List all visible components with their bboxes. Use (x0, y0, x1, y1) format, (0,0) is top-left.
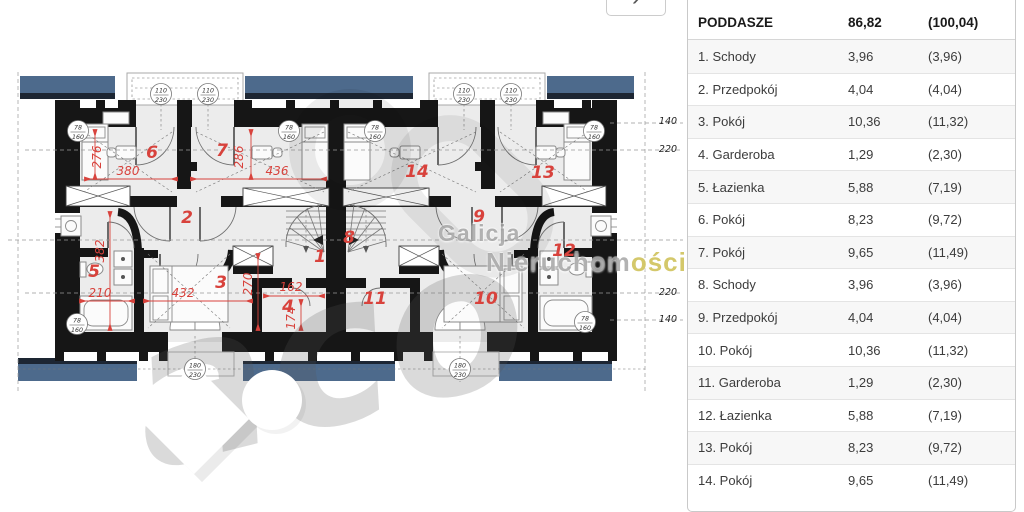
margin-dimension-label: 140 (659, 314, 677, 325)
room-name: 9. Przedpokój (698, 310, 848, 325)
svg-text:78: 78 (285, 125, 293, 132)
table-row: 3. Pokój 10,36 (11,32) (688, 105, 1015, 138)
svg-text:180: 180 (189, 363, 201, 370)
svg-text:230: 230 (155, 97, 167, 104)
svg-text:230: 230 (458, 97, 470, 104)
margin-dimension-label: 140 (659, 116, 677, 127)
room-number-label: 13 (531, 163, 555, 183)
room-name: 10. Pokój (698, 343, 848, 358)
svg-text:160: 160 (72, 134, 84, 141)
window-size-label: 78160 (279, 121, 300, 142)
table-row: 12. Łazienka 5,88 (7,19) (688, 399, 1015, 432)
room-number-label: 2 (181, 208, 193, 228)
table-row: 7. Pokój 9,65 (11,49) (688, 236, 1015, 269)
table-row: 5. Łazienka 5,88 (7,19) (688, 170, 1015, 203)
room-area: 10,36 (848, 114, 928, 129)
room-area-gross: (11,32) (928, 114, 1015, 129)
room-name: 8. Schody (698, 277, 848, 292)
room-number-label: 5 (88, 262, 100, 282)
room-number-label: 6 (146, 143, 158, 163)
room-name: 13. Pokój (698, 440, 848, 455)
room-area: 3,96 (848, 277, 928, 292)
svg-text:160: 160 (283, 134, 295, 141)
window-size-label: 78160 (575, 312, 596, 333)
svg-text:160: 160 (579, 325, 591, 332)
room-area-gross: (11,49) (928, 473, 1015, 488)
window-size-label: 110230 (454, 84, 475, 105)
room-number-label: 10 (474, 289, 498, 309)
svg-text:230: 230 (189, 372, 201, 379)
room-area: 1,29 (848, 375, 928, 390)
room-number-label: 12 (552, 241, 576, 261)
room-area-gross: (7,19) (928, 180, 1015, 195)
room-name: 3. Pokój (698, 114, 848, 129)
dimension-label: 382 (93, 240, 107, 263)
svg-text:230: 230 (454, 372, 466, 379)
margin-dimension-label: 220 (659, 144, 677, 155)
table-row: 6. Pokój 8,23 (9,72) (688, 203, 1015, 236)
svg-text:78: 78 (581, 316, 589, 323)
room-area-gross: (7,19) (928, 408, 1015, 423)
room-area: 5,88 (848, 408, 928, 423)
table-row: 1. Schody 3,96 (3,96) (688, 40, 1015, 73)
table-row: 2. Przedpokój 4,04 (4,04) (688, 73, 1015, 106)
svg-text:230: 230 (505, 97, 517, 104)
header-floor-area: 86,82 (848, 15, 928, 30)
table-row: 13. Pokój 8,23 (9,72) (688, 431, 1015, 464)
room-area: 1,29 (848, 147, 928, 162)
room-number-label: 8 (343, 228, 355, 248)
table-row: 14. Pokój 9,65 (11,49) (688, 464, 1015, 497)
dimension-label: 270 (241, 272, 255, 295)
floor-plan: aco 110230110230110230110230781607816078… (0, 0, 688, 497)
svg-text:78: 78 (74, 125, 82, 132)
room-name: 5. Łazienka (698, 180, 848, 195)
dimension-label: 286 (232, 145, 246, 168)
table-row: 4. Garderoba 1,29 (2,30) (688, 138, 1015, 171)
header-floor-total: (100,04) (928, 15, 1015, 30)
room-name: 11. Garderoba (698, 375, 848, 390)
window-size-label: 78160 (365, 121, 386, 142)
window-size-label: 110230 (501, 84, 522, 105)
margin-dimension-labels: 140220220140 (659, 116, 677, 325)
svg-text:110: 110 (505, 88, 517, 95)
dimension-label: 436 (266, 164, 289, 178)
room-name: 6. Pokój (698, 212, 848, 227)
room-number-label: 11 (363, 289, 387, 309)
svg-text:180: 180 (454, 363, 466, 370)
svg-text:110: 110 (202, 88, 214, 95)
room-area: 8,23 (848, 212, 928, 227)
dimension-label: 380 (117, 164, 140, 178)
room-area-gross: (2,30) (928, 147, 1015, 162)
chevron-right-icon: › (632, 0, 640, 10)
room-area: 10,36 (848, 343, 928, 358)
table-row: 8. Schody 3,96 (3,96) (688, 268, 1015, 301)
dimension-label: 162 (280, 280, 303, 294)
header-floor-name: PODDASZE (698, 15, 848, 30)
window-size-label: 78160 (68, 121, 89, 142)
window-size-label: 110230 (151, 84, 172, 105)
room-area-gross: (11,32) (928, 343, 1015, 358)
window-size-label: 78160 (584, 121, 605, 142)
svg-text:78: 78 (73, 318, 81, 325)
room-name: 2. Przedpokój (698, 82, 848, 97)
room-number-label: 14 (405, 162, 429, 182)
window-size-label: 78160 (67, 314, 88, 335)
room-area: 3,96 (848, 49, 928, 64)
table-header-row: PODDASZE 86,82 (100,04) (688, 0, 1015, 40)
dimension-label: 210 (89, 286, 112, 300)
room-name: 12. Łazienka (698, 408, 848, 423)
room-area: 9,65 (848, 473, 928, 488)
room-name: 7. Pokój (698, 245, 848, 260)
table-body: 1. Schody 3,96 (3,96) 2. Przedpokój 4,04… (688, 40, 1015, 496)
dimension-label: 432 (172, 286, 195, 300)
area-table-panel: PODDASZE 86,82 (100,04) 1. Schody 3,96 (… (687, 0, 1016, 512)
svg-text:78: 78 (371, 125, 379, 132)
window-size-label: 180230 (450, 359, 471, 380)
room-area: 8,23 (848, 440, 928, 455)
table-row: 9. Przedpokój 4,04 (4,04) (688, 301, 1015, 334)
room-number-label: 3 (215, 273, 227, 293)
svg-text:110: 110 (458, 88, 470, 95)
room-area-gross: (9,72) (928, 440, 1015, 455)
page: aco 110230110230110230110230781607816078… (0, 0, 1024, 497)
svg-text:230: 230 (202, 97, 214, 104)
room-name: 4. Garderoba (698, 147, 848, 162)
room-name: 14. Pokój (698, 473, 848, 488)
margin-dimension-label: 220 (659, 287, 677, 298)
room-area-gross: (4,04) (928, 310, 1015, 325)
room-area: 9,65 (848, 245, 928, 260)
svg-text:160: 160 (71, 327, 83, 334)
room-area: 5,88 (848, 180, 928, 195)
room-area-gross: (3,96) (928, 277, 1015, 292)
room-number-label: 7 (216, 141, 228, 161)
window-size-label: 110230 (198, 84, 219, 105)
room-area: 4,04 (848, 310, 928, 325)
room-area-gross: (9,72) (928, 212, 1015, 227)
svg-text:110: 110 (155, 88, 167, 95)
room-area: 4,04 (848, 82, 928, 97)
room-number-label: 1 (314, 247, 326, 267)
room-area-gross: (3,96) (928, 49, 1015, 64)
svg-text:78: 78 (590, 125, 598, 132)
svg-text:160: 160 (588, 134, 600, 141)
room-area-gross: (4,04) (928, 82, 1015, 97)
table-row: 10. Pokój 10,36 (11,32) (688, 333, 1015, 366)
room-area-gross: (11,49) (928, 245, 1015, 260)
window-size-label: 180230 (185, 359, 206, 380)
room-name: 1. Schody (698, 49, 848, 64)
table-row: 11. Garderoba 1,29 (2,30) (688, 366, 1015, 399)
dimension-label: 174 (284, 307, 298, 330)
carousel-next-button[interactable]: › (606, 0, 666, 16)
svg-text:160: 160 (369, 134, 381, 141)
room-number-label: 9 (473, 207, 485, 227)
room-area-gross: (2,30) (928, 375, 1015, 390)
dimension-label: 276 (90, 145, 104, 168)
